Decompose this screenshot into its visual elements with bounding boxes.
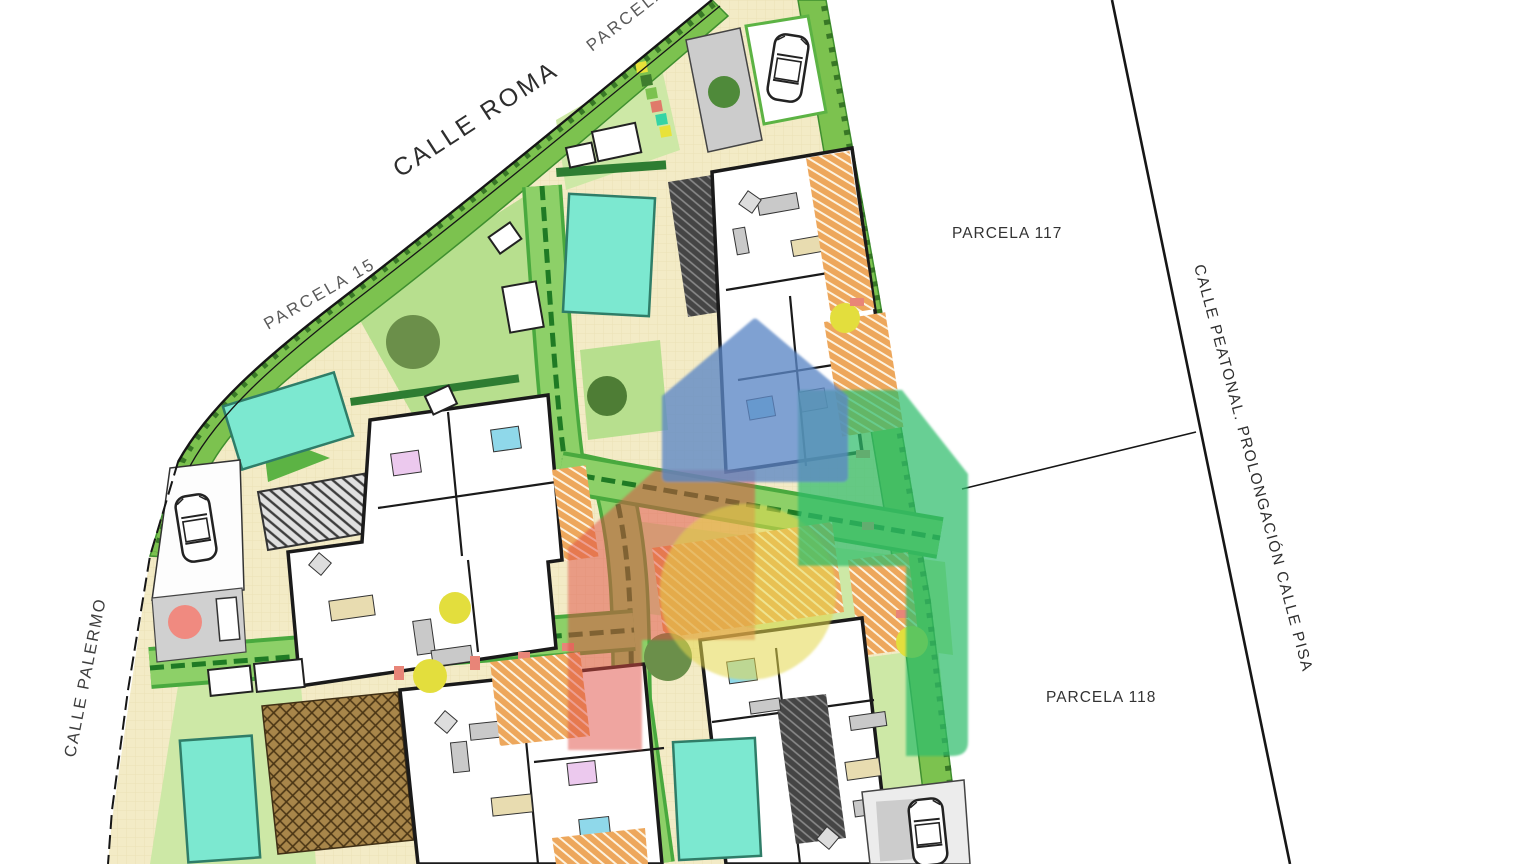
parcel-divider-line — [962, 432, 1196, 489]
parcel-label-117: PARCELA 117 — [952, 225, 1062, 242]
tree — [708, 76, 740, 108]
site-plan-page: CALLE ROMA PARCELA 15 PARCELA 1 PARCELA … — [0, 0, 1536, 864]
yellow-shrub — [830, 303, 860, 333]
tree — [386, 315, 440, 369]
parcel-label-118: PARCELA 118 — [1046, 689, 1156, 706]
yellow-shrub — [439, 592, 471, 624]
street-label-calle-palermo: CALLE PALERMO — [61, 596, 110, 759]
pool — [673, 738, 761, 860]
pool — [180, 736, 260, 863]
site-plan-svg: CALLE ROMA PARCELA 15 PARCELA 1 PARCELA … — [0, 0, 1536, 864]
right-boundary-line — [1112, 0, 1290, 864]
car-icon — [908, 797, 949, 864]
yellow-shrub — [413, 659, 447, 693]
pool — [563, 194, 655, 316]
red-shrub — [168, 605, 202, 639]
pergola — [262, 692, 414, 854]
left-parking — [152, 460, 246, 662]
tree — [587, 376, 627, 416]
